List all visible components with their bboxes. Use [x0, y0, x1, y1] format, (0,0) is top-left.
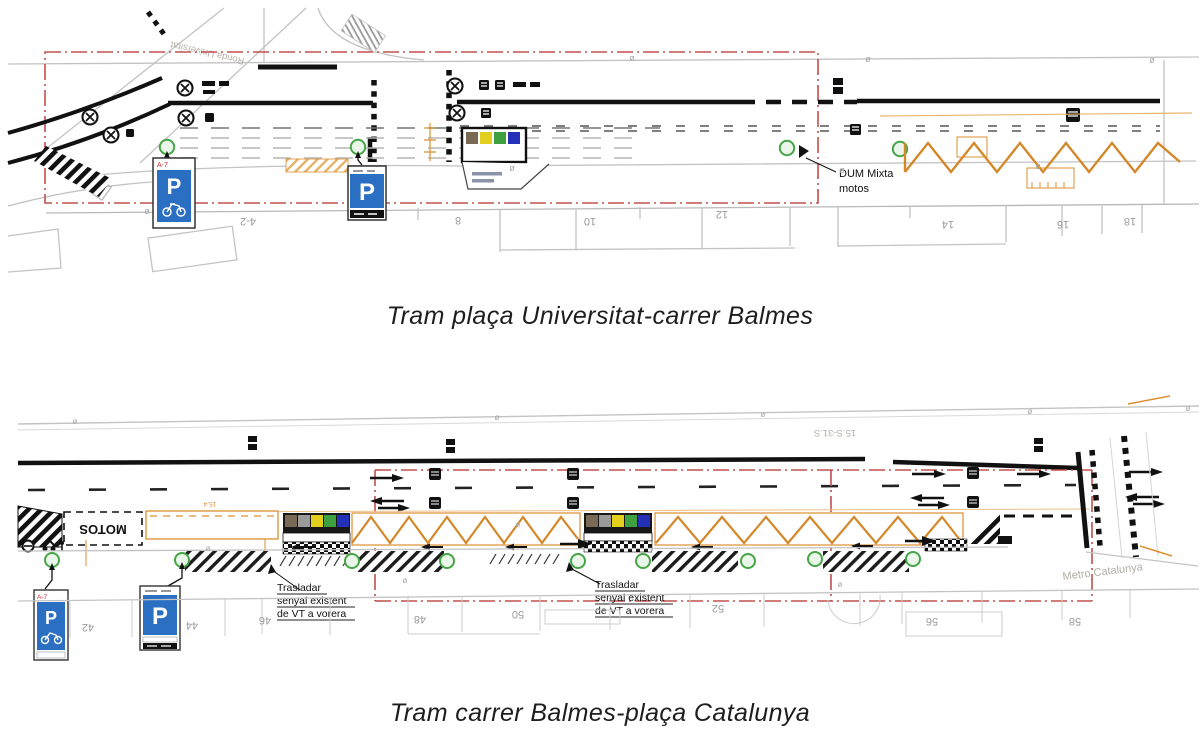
svg-text:50: 50: [512, 608, 524, 620]
svg-text:ø: ø: [761, 410, 766, 419]
metro-label: Metro Catalunya: [1062, 561, 1144, 583]
painted-zone-hatch: [286, 159, 348, 172]
loading-zigzag-zone-1: [352, 513, 580, 545]
relocate-note-1: Trasladar senyal existent de VT a vorera: [268, 564, 355, 620]
dimension-label: 15.4: [203, 500, 216, 507]
svg-text:ø: ø: [403, 576, 408, 585]
svg-text:senyal existent: senyal existent: [277, 595, 347, 607]
svg-text:8: 8: [455, 214, 461, 226]
svg-text:18: 18: [1124, 215, 1136, 227]
plan-canvas: Ronda Universitat: [0, 0, 1200, 743]
container-blue: [508, 132, 520, 144]
lane-arrows: [370, 468, 1165, 512]
svg-text:ø: ø: [1028, 407, 1033, 416]
svg-text:Trasladar: Trasladar: [595, 579, 639, 591]
svg-text:14: 14: [942, 218, 954, 230]
svg-text:de VT a vorera: de VT a vorera: [595, 605, 664, 617]
svg-text:10: 10: [584, 215, 596, 227]
svg-text:ø: ø: [73, 417, 78, 426]
transit-icons-top: [83, 78, 1081, 143]
svg-text:ø: ø: [144, 206, 150, 216]
loading-zone-zigzag-top: [880, 113, 1192, 188]
hatch-wedge-right: [966, 513, 1000, 544]
svg-text:12: 12: [716, 208, 728, 220]
parking-letter: P: [152, 603, 168, 630]
bottom-plan: øøø øø 15.S-31.S: [18, 396, 1199, 660]
svg-text:ø: ø: [865, 54, 871, 64]
container-green: [494, 132, 506, 144]
svg-text:ø: ø: [206, 544, 211, 553]
svg-text:56: 56: [926, 615, 938, 627]
caption-bottom-figure: Tram carrer Balmes-plaça Catalunya: [0, 699, 1200, 728]
svg-text:ø: ø: [1035, 161, 1041, 171]
top-plan: Ronda Universitat: [8, 8, 1199, 272]
svg-text:Trasladar: Trasladar: [277, 582, 321, 594]
dum-label-line2: motos: [839, 183, 869, 195]
svg-text:16: 16: [1057, 218, 1069, 230]
svg-text:46: 46: [259, 614, 271, 626]
parking-sign-top: P: [348, 166, 386, 220]
svg-text:ø: ø: [1149, 55, 1155, 65]
parking-letter: P: [359, 179, 375, 206]
motos-label: MOTOS: [79, 522, 127, 537]
building-numbers-bottom: 42 44 46 48 50 52 56 58: [82, 602, 1081, 633]
svg-text:ø: ø: [838, 580, 843, 589]
bus-route-glyphs: [126, 78, 1080, 137]
svg-text:ø: ø: [629, 53, 635, 63]
container-brown: [466, 132, 478, 144]
bottom-facade-lines: [18, 406, 1199, 430]
metro-stairs-icon: [341, 14, 385, 53]
svg-text:52: 52: [712, 602, 724, 614]
sign-code-label: A-7: [37, 594, 48, 601]
tree-circles-bottom: [45, 552, 920, 568]
svg-text:58: 58: [1069, 615, 1081, 627]
container-yellow: [480, 132, 492, 144]
svg-text:senyal existent: senyal existent: [595, 592, 665, 604]
svg-text:48: 48: [414, 613, 426, 625]
dum-annotation: DUM Mixta motos: [799, 145, 894, 195]
sign-code-label: A-7: [157, 162, 168, 169]
bus-stop-glyphs: [248, 436, 1043, 453]
document-page: Ronda Universitat: [0, 0, 1200, 743]
parking-letter: P: [167, 174, 182, 199]
svg-text:44: 44: [186, 619, 198, 631]
container-block-b: [584, 513, 652, 552]
svg-text:4-2: 4-2: [240, 215, 256, 227]
reserved-zone-orange: 15.4: [146, 500, 278, 539]
svg-text:ø: ø: [509, 163, 515, 173]
svg-text:ø: ø: [839, 165, 845, 175]
parking-sign-bike-top: A-7 P: [153, 158, 195, 228]
svg-text:ø: ø: [516, 520, 521, 529]
parking-sign-bottom: P: [140, 586, 180, 650]
svg-text:42: 42: [82, 621, 94, 633]
dum-label-line1: DUM Mixta: [839, 168, 894, 180]
svg-text:de VT a vorera: de VT a vorera: [277, 608, 346, 620]
svg-text:ø: ø: [495, 413, 500, 422]
section-label: 15.S-31.S: [814, 427, 856, 438]
container-block-a: [283, 513, 350, 554]
diameter-marks-top: øøø øøøø: [144, 53, 1155, 216]
svg-text:ø: ø: [1186, 404, 1191, 413]
parking-letter: P: [45, 608, 57, 628]
caption-top-figure: Tram plaça Universitat-carrer Balmes: [0, 302, 1200, 331]
